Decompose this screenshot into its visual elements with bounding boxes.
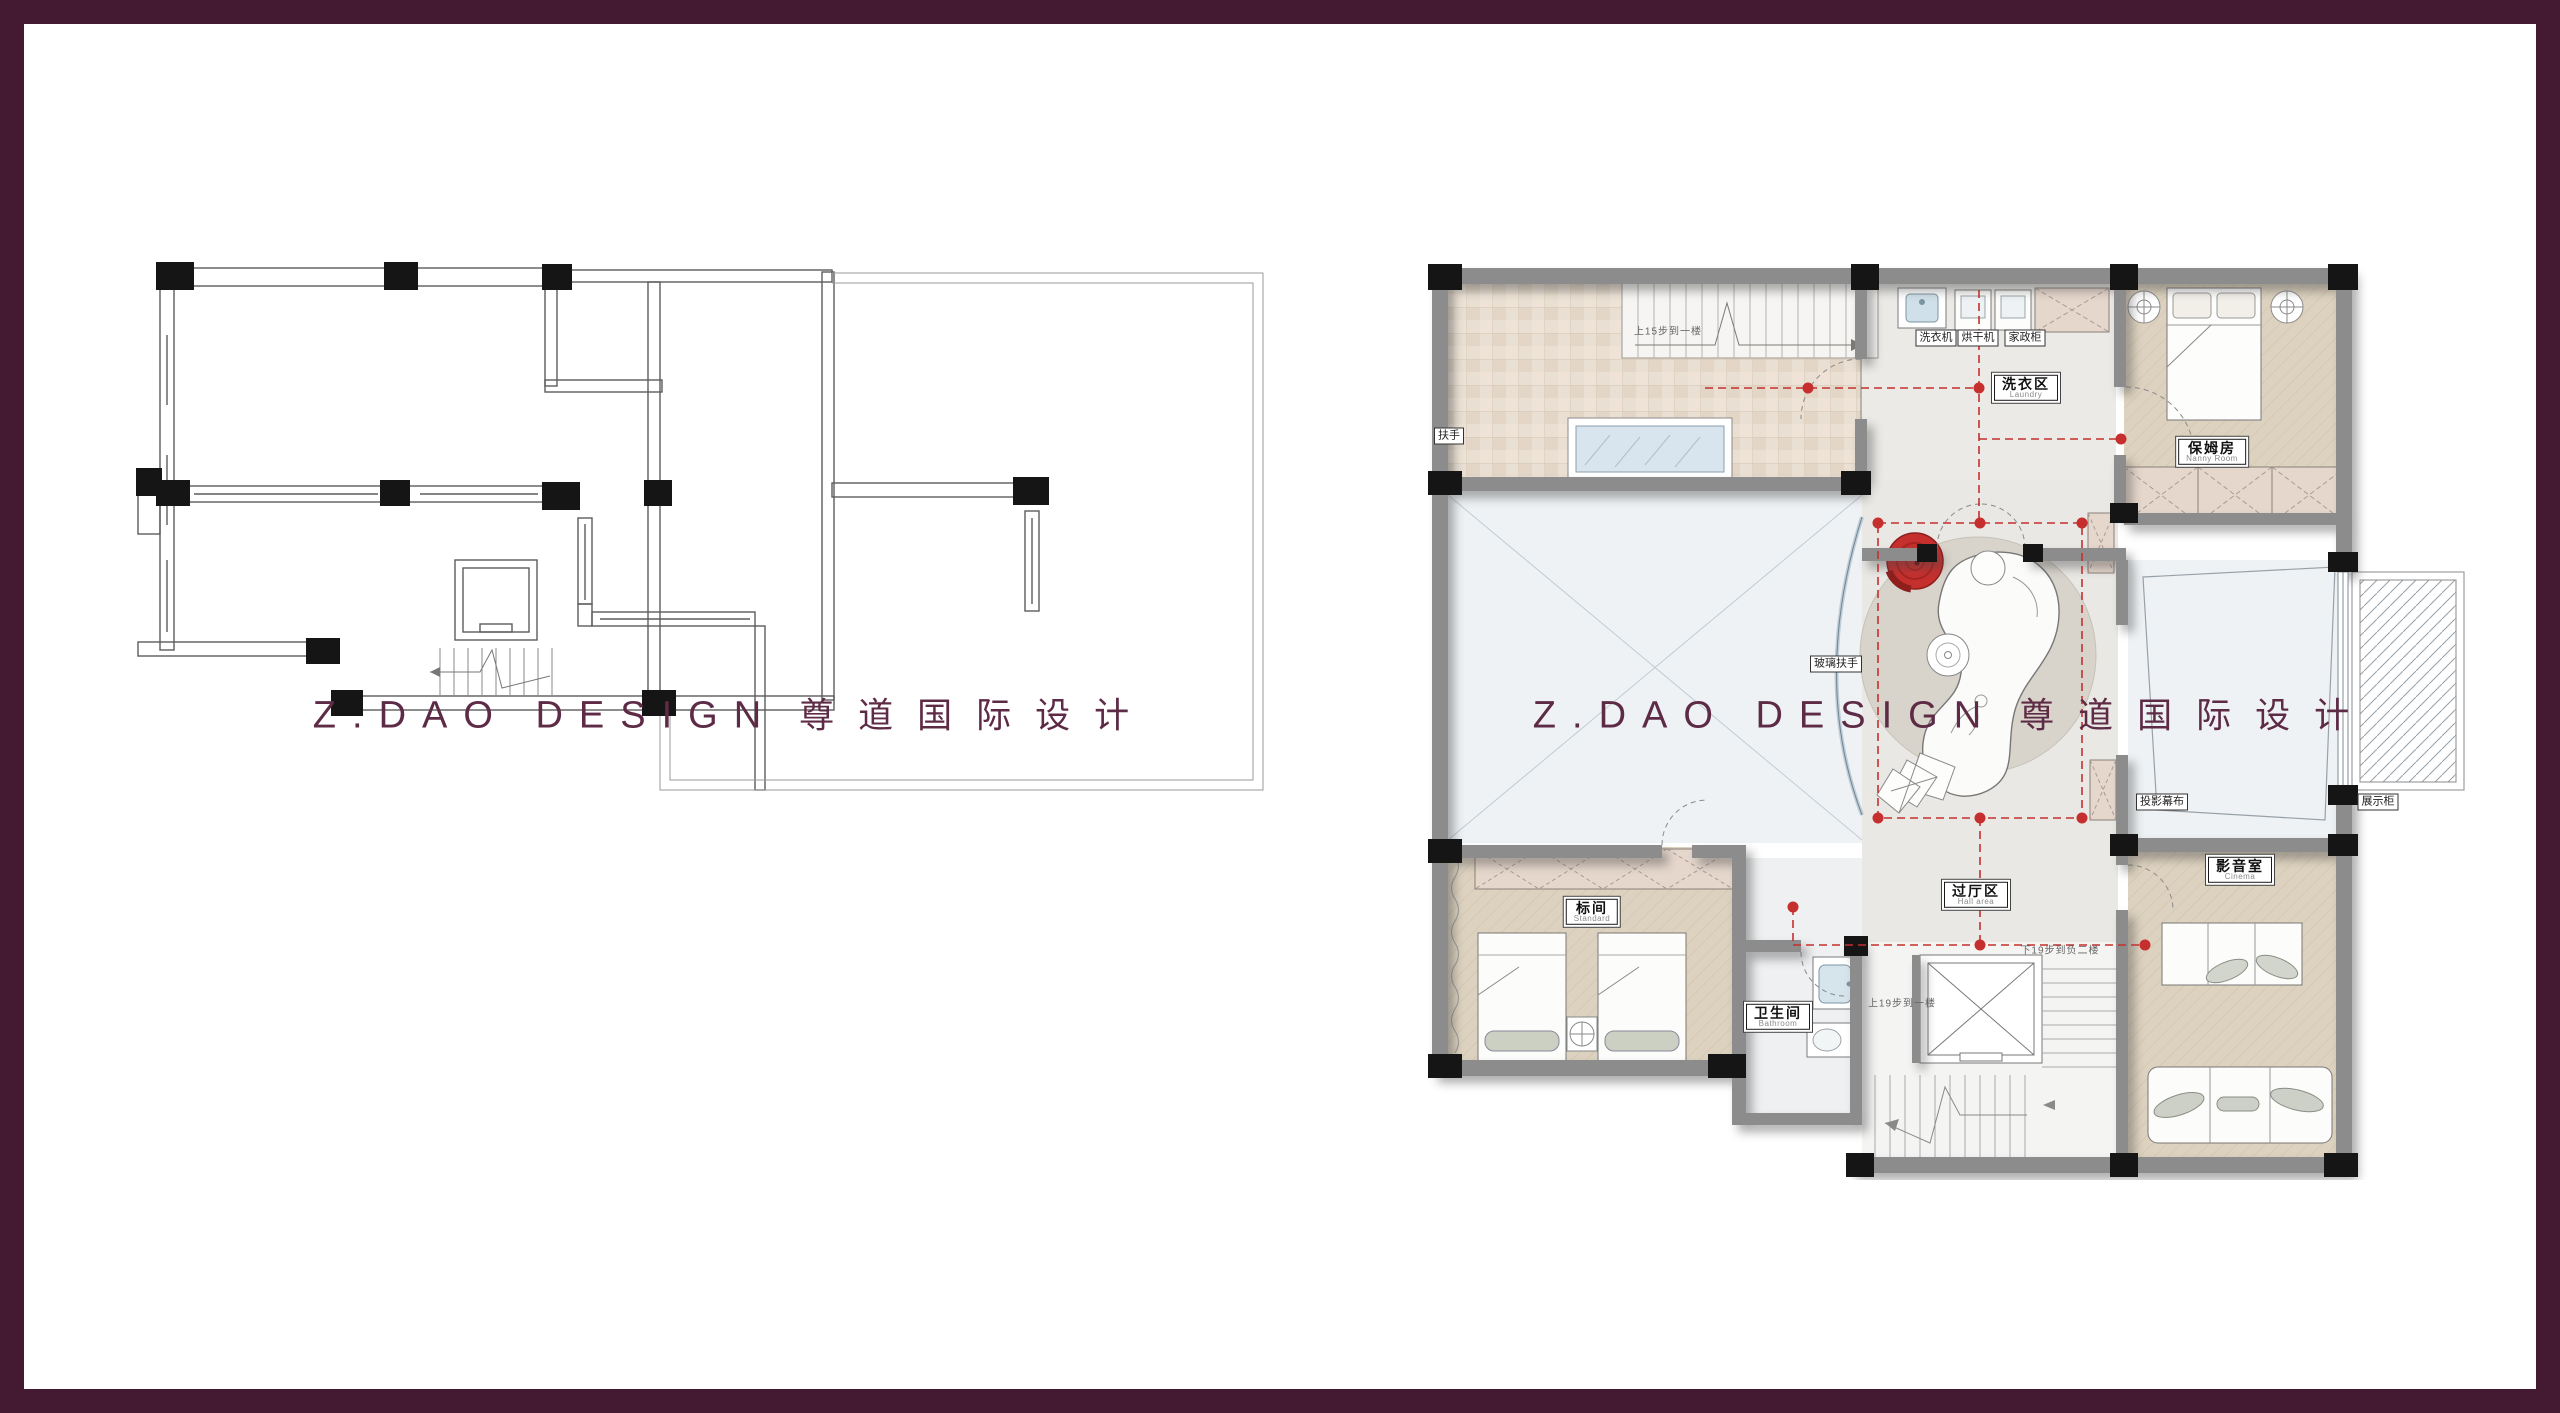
side-table <box>1927 634 1969 676</box>
ceiling-fan-icon <box>2271 291 2303 323</box>
desk-stool <box>1971 551 2005 585</box>
handrail-callout: 扶手 <box>1434 428 1464 445</box>
room-label-nanny: 保姆房Nanny Room <box>2178 439 2246 465</box>
housekeeping-cabinet <box>2035 288 2109 332</box>
room-label-hall: 过厅区Hall area <box>1944 882 2008 908</box>
cabinet-callout: 家政柜 <box>2005 330 2046 347</box>
sofa <box>2148 1067 2332 1143</box>
top-stairs <box>1622 283 1878 358</box>
balcony-void <box>2352 572 2464 790</box>
glass-handrail-callout: 玻璃扶手 <box>1810 656 1862 673</box>
room-label-bathroom: 卫生间Bathroom <box>1746 1004 1810 1030</box>
room-label-cinema: 影音室Cinema <box>2208 857 2272 883</box>
projection-screen-callout: 投影幕布 <box>2136 794 2188 811</box>
room-label-laundry: 洗衣区Laundry <box>1994 375 2058 401</box>
poster-canvas: 扶手 玻璃扶手 洗衣机 烘干机 家政柜 投影幕布 展示柜 洗衣区Laundry … <box>0 0 2560 1413</box>
double-bed <box>2167 288 2261 420</box>
twin-bed <box>1598 933 1686 1063</box>
elevator <box>1920 955 2042 1063</box>
watermark-left: Z.DAO DESIGN尊道国际设计 <box>313 688 1153 739</box>
left-elevator <box>455 560 537 640</box>
glass-panel <box>1568 418 1732 480</box>
stair-note-up15: 上15步到一楼 <box>1634 323 1702 338</box>
laundry-appliances <box>1898 288 2109 332</box>
stair-note-down19: 下19步到负二楼 <box>2020 942 2099 957</box>
dryer-callout: 烘干机 <box>1958 330 1999 347</box>
twin-bed <box>1478 933 1566 1063</box>
washer-callout: 洗衣机 <box>1916 330 1957 347</box>
ceiling-fan-icon <box>2128 291 2160 323</box>
stair-note-up19: 上19步到一楼 <box>1868 995 1936 1010</box>
watermark-right: Z.DAO DESIGN尊道国际设计 <box>1533 688 2373 739</box>
bedside-table <box>1567 1017 1597 1051</box>
left-plan-columns <box>136 262 1049 716</box>
room-label-standard: 标间Standard <box>1566 899 1618 925</box>
display-cabinet-callout: 展示柜 <box>2358 794 2399 811</box>
media-console <box>2162 923 2302 988</box>
